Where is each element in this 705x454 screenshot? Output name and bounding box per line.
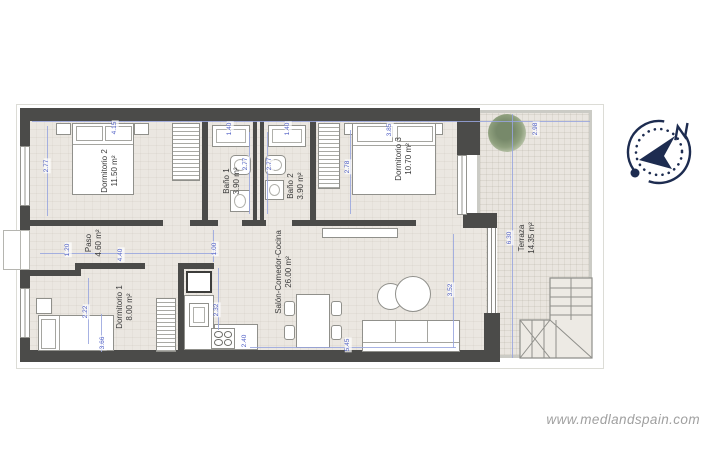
dimension-label: 2.78	[345, 160, 352, 175]
room-label-bano2: Baño 23.90 m²	[286, 172, 306, 199]
dining-chair	[331, 301, 342, 316]
sliding-door-terrace	[487, 228, 497, 313]
wall-dorm2-bano1	[202, 121, 208, 226]
dimension-label: 2.98	[533, 122, 540, 137]
dining-chair	[284, 325, 295, 340]
dimension-label: 4.15	[112, 121, 119, 136]
dim-line	[249, 132, 250, 214]
dim-line	[267, 132, 268, 214]
wardrobe-dorm3	[318, 123, 340, 189]
console-dorm3	[322, 228, 398, 238]
dimension-label: 1.40	[227, 122, 234, 137]
coffee-table-large	[395, 276, 431, 312]
window-dorm3-terrace	[457, 155, 467, 215]
salon-floor-extension	[465, 228, 486, 354]
dimension-label: 2.77	[267, 157, 274, 172]
entrance-landing	[3, 230, 21, 270]
dimension-label: 3.85	[387, 123, 394, 138]
dimension-label: 1.20	[65, 243, 72, 258]
wall-dorm1-top-right	[75, 263, 145, 269]
wall-hall-bano1-a	[208, 220, 218, 226]
wall-bano-double-b	[260, 121, 264, 226]
room-label-dormitorio2: Dormitorio 211.50 m²	[100, 149, 120, 193]
wall-left-c	[20, 268, 30, 288]
wall-bano-double-a	[253, 121, 257, 226]
window-dorm1	[20, 288, 30, 338]
room-label-dormitorio3: Dormitorio 310.70 m²	[394, 137, 414, 181]
dimension-label: 4.40	[118, 248, 125, 263]
stairs-icon	[517, 276, 595, 360]
floor-plan-canvas: 4.15 1.40 1.40 3.85 2.98 2.77 2.77 2.77 …	[0, 0, 705, 454]
wall-dorm1-step	[75, 263, 81, 276]
nightstand	[36, 298, 52, 314]
wall-left-b	[20, 204, 30, 230]
kitchen-sink	[189, 303, 209, 327]
wall-corner-top-right	[457, 121, 480, 155]
wall-dorm1-top-left	[30, 270, 75, 276]
dimension-label: 1.40	[285, 122, 292, 137]
dimension-label: 2.77	[243, 157, 250, 172]
room-label-salon: Salón-Comedor-Cocina26.00 m²	[274, 230, 294, 314]
wardrobe-dorm2	[172, 123, 200, 181]
wall-left-a	[20, 108, 30, 146]
room-label-terraza: Terraza14.35 m²	[517, 222, 537, 254]
wall-hall-bano2	[292, 220, 310, 226]
window-dorm2	[20, 146, 30, 206]
dim-line	[218, 268, 219, 330]
fridge	[186, 271, 212, 293]
room-label-dormitorio1: Dormitorio 18.00 m²	[115, 285, 135, 329]
dimension-label: 5.45	[345, 338, 352, 353]
dining-chair	[331, 325, 342, 340]
plant-icon	[488, 114, 526, 152]
dimension-label: 2.77	[44, 159, 51, 174]
wall-kitchen-top	[184, 263, 214, 269]
wall-hall-dorm2-b	[190, 220, 202, 226]
dim-line	[250, 347, 456, 348]
dimension-label: 3.66	[100, 336, 107, 351]
nightstand	[56, 123, 71, 135]
stove-burners	[211, 328, 235, 349]
wall-dorm3-salon	[316, 220, 416, 226]
dimension-label: 2.32	[214, 303, 221, 318]
wall-corner-bottom-right	[484, 313, 500, 362]
dimension-label: 2.40	[242, 334, 249, 349]
dimension-label: 2.22	[83, 305, 90, 320]
dimension-label: 3.52	[448, 283, 455, 298]
wall-hall-bano1-b	[242, 220, 266, 226]
wall-top	[20, 108, 480, 121]
dimension-label: 6.30	[507, 231, 514, 246]
wall-bano2-dorm3	[310, 121, 316, 226]
wall-right-mid-block	[463, 213, 497, 228]
room-label-paso: Paso4.60 m²	[84, 229, 104, 256]
wardrobe-dorm1	[156, 298, 176, 352]
dimension-label: 1.00	[212, 242, 219, 257]
room-label-bano1: Baño 13.90 m²	[222, 167, 242, 194]
watermark-text: www.medlandspain.com	[530, 412, 700, 427]
entrance-opening	[20, 230, 30, 270]
dining-table	[296, 294, 330, 348]
compass-icon	[622, 115, 696, 189]
wall-hall-dorm2-a	[30, 220, 163, 226]
nightstand	[134, 123, 149, 135]
